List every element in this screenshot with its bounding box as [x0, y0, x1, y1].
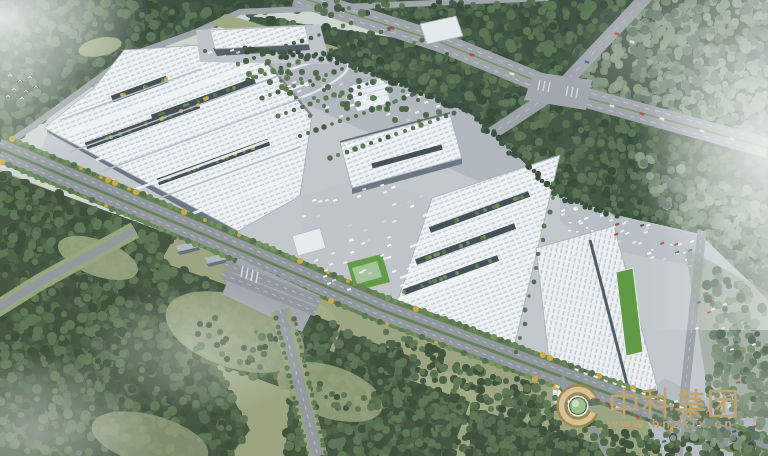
svg-text:www.hnzkjx.cn: www.hnzkjx.cn: [607, 417, 735, 431]
